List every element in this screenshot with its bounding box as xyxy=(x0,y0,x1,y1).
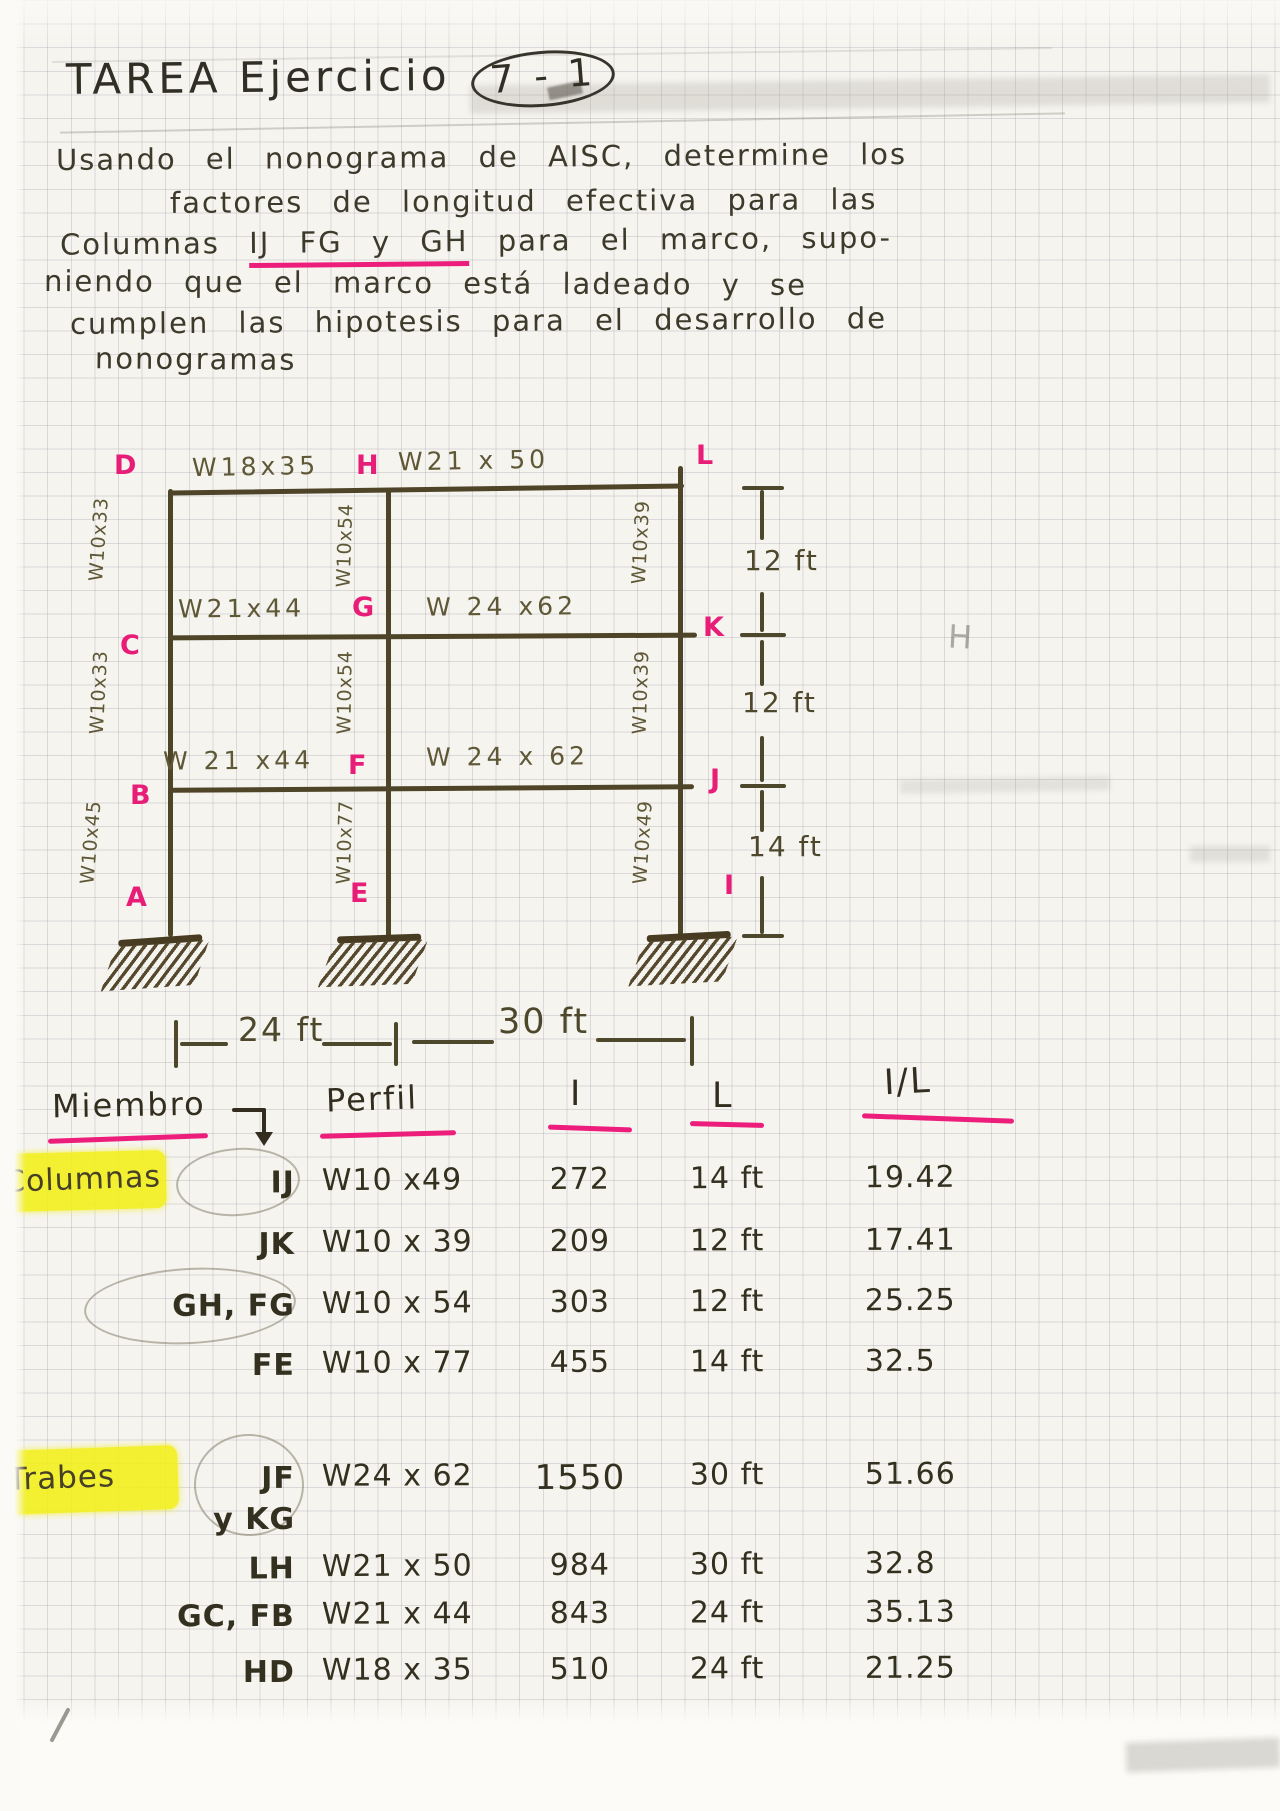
dim-line-segment xyxy=(760,876,764,934)
problem-line-2: factores de longitud efectiva para las xyxy=(170,182,878,220)
dim-story2: 12 ft xyxy=(742,686,817,719)
dim-line-segment xyxy=(760,736,764,782)
miembro-arrow-icon xyxy=(255,1132,273,1146)
table-header-perfil: Perfil xyxy=(325,1078,418,1119)
node-label-B: B xyxy=(130,780,151,811)
table-header-IL: I/L xyxy=(883,1061,933,1103)
fixed-support-I xyxy=(643,931,740,992)
dim-tick-J xyxy=(740,784,786,788)
fixed-support-E xyxy=(333,933,429,992)
dim-tick-left xyxy=(174,1020,178,1068)
header-underline xyxy=(548,1125,632,1133)
dim-tick-I xyxy=(742,934,784,938)
beam-label-HL: W21 x 50 xyxy=(398,445,550,477)
dim-line-segment xyxy=(760,790,764,832)
cell-perfil: W10 x 77 xyxy=(322,1345,502,1381)
cell-inertia: 209 xyxy=(520,1224,640,1259)
column-DA xyxy=(168,489,173,937)
cell-ratio: 21.25 xyxy=(865,1650,1030,1686)
table-row: JF y KG W24 x 62 1550 30 ft 51.66 xyxy=(0,1456,1080,1560)
node-label-A: A xyxy=(126,882,147,913)
cell-perfil: W10 x 39 xyxy=(322,1224,502,1260)
cell-inertia: 510 xyxy=(520,1652,640,1687)
scan-smudge-bottom-right xyxy=(1126,1737,1280,1772)
cell-member: FE xyxy=(60,1346,295,1387)
beam-label-BF: W 21 x44 xyxy=(163,745,314,775)
cell-ratio: 35.13 xyxy=(865,1594,1030,1630)
cell-member: JK xyxy=(60,1225,295,1266)
dim-story1: 12 ft xyxy=(744,544,819,577)
table-row: HD W18 x 35 510 24 ft 21.25 xyxy=(0,1650,1080,1754)
column-label-CB: W10x33 xyxy=(86,649,112,734)
cell-length: 12 ft xyxy=(690,1284,825,1320)
cell-length: 14 ft xyxy=(690,1344,825,1379)
support-hatch xyxy=(101,940,209,992)
cell-inertia: 455 xyxy=(520,1345,640,1380)
problem-line-1: Usando el nonograma de AISC, determine l… xyxy=(56,137,907,177)
column-label-FE: W10x77 xyxy=(333,800,358,885)
dim-bay2: 30 ft xyxy=(498,1002,589,1042)
problem-line-4: niendo que el marco está ladeado y se xyxy=(44,264,807,302)
cell-member: LH xyxy=(60,1549,295,1591)
header-underline xyxy=(48,1133,208,1144)
dim-tick-K xyxy=(740,633,786,637)
node-label-G: G xyxy=(352,592,374,623)
cell-length: 24 ft xyxy=(690,1595,825,1630)
homework-page: TAREA Ejercicio7 - 1 Usando el nonograma… xyxy=(0,0,1280,1811)
beam-DHL xyxy=(169,483,684,495)
cell-inertia: 984 xyxy=(520,1547,640,1583)
beam-label-CG: W21x44 xyxy=(178,593,305,623)
problem-line-3-pre: Columnas xyxy=(60,226,220,261)
cell-ratio: 25.25 xyxy=(865,1282,1030,1318)
exercise-number-badge: 7 - 1 xyxy=(469,45,617,112)
cell-length: 30 ft xyxy=(690,1457,825,1492)
support-hatch xyxy=(628,937,737,987)
cell-member: HD xyxy=(60,1653,295,1694)
cell-perfil: W24 x 62 xyxy=(322,1458,502,1494)
node-label-K: K xyxy=(703,612,724,643)
eraser-smudge xyxy=(1190,846,1270,862)
node-label-C: C xyxy=(120,630,140,661)
cell-perfil: W10 x49 xyxy=(322,1162,502,1198)
cell-inertia: 303 xyxy=(520,1284,640,1320)
underlined-column-names: IJ FG y GH xyxy=(249,224,469,268)
beam-CGK xyxy=(169,633,697,641)
cell-member: JF y KG xyxy=(60,1459,295,1541)
node-label-H: H xyxy=(356,450,379,481)
problem-line-6: nonogramas xyxy=(95,341,297,376)
column-HE xyxy=(386,488,391,937)
problem-line-3: Columnas IJ FG y GH para el marco, supo- xyxy=(60,220,892,261)
cell-member: IJ xyxy=(60,1163,295,1205)
cell-ratio: 32.8 xyxy=(865,1545,1030,1581)
dim-line-segment xyxy=(322,1042,392,1046)
cell-inertia: 1550 xyxy=(520,1458,640,1498)
cell-perfil: W21 x 44 xyxy=(322,1596,502,1632)
cell-ratio: 32.5 xyxy=(865,1343,1030,1379)
column-label-DC: W10x33 xyxy=(85,496,113,582)
cell-ratio: 17.41 xyxy=(865,1222,1030,1258)
dim-line-segment xyxy=(760,490,764,540)
cell-perfil: W10 x 54 xyxy=(322,1285,502,1321)
dim-tick-mid xyxy=(394,1022,398,1066)
dim-line-segment xyxy=(596,1038,686,1042)
table-header-L: L xyxy=(712,1076,734,1116)
dim-line-segment xyxy=(760,640,764,686)
cell-ratio: 19.42 xyxy=(865,1159,1030,1195)
cell-length: 14 ft xyxy=(690,1161,825,1197)
column-label-BA: W10x45 xyxy=(76,799,105,885)
cell-perfil: W18 x 35 xyxy=(322,1652,502,1688)
beam-label-DH: W18x35 xyxy=(192,451,320,482)
cell-length: 12 ft xyxy=(690,1223,825,1258)
column-label-LK: W10x39 xyxy=(628,499,654,584)
column-label-KJ: W10x39 xyxy=(629,650,654,735)
cell-length: 30 ft xyxy=(690,1547,825,1583)
node-label-J: J xyxy=(710,764,720,795)
dim-line-segment xyxy=(412,1040,494,1044)
header-underline xyxy=(320,1130,456,1139)
column-label-JI: W10x49 xyxy=(629,799,657,885)
beam-BFJ xyxy=(170,784,694,793)
node-label-F: F xyxy=(348,750,366,781)
dim-story3: 14 ft xyxy=(748,830,823,863)
problem-line-5: cumplen las hipotesis para el desarrollo… xyxy=(70,301,887,341)
dim-tick-right xyxy=(690,1016,694,1066)
eraser-smudge xyxy=(900,776,1110,794)
cell-perfil: W21 x 50 xyxy=(322,1548,502,1584)
table-header-I: I xyxy=(570,1074,582,1114)
table-row: FE W10 x 77 455 14 ft 32.5 xyxy=(0,1343,1080,1447)
ruled-line-under-title xyxy=(60,112,1065,133)
support-hatch xyxy=(318,939,428,987)
cell-member: GH, FG xyxy=(60,1286,295,1328)
miembro-arrow-icon xyxy=(232,1108,266,1112)
cell-length: 24 ft xyxy=(690,1651,825,1686)
dim-line-segment xyxy=(760,592,764,632)
header-underline xyxy=(862,1113,1014,1123)
dim-bay1: 24 ft xyxy=(238,1010,324,1049)
column-label-HG: W10x54 xyxy=(333,503,358,588)
miembro-arrow-icon xyxy=(262,1108,266,1134)
node-label-D: D xyxy=(114,450,136,481)
cell-member: GC, FB xyxy=(60,1597,295,1638)
column-label-GF: W10x54 xyxy=(333,650,356,735)
page-top-margin xyxy=(0,0,1280,50)
beam-label-GK: W 24 x62 xyxy=(426,591,577,621)
problem-line-3-post: para el marco, supo- xyxy=(498,220,893,257)
node-label-I: I xyxy=(724,870,734,901)
cell-inertia: 272 xyxy=(520,1161,640,1197)
node-label-L: L xyxy=(696,440,713,471)
page-title: TAREA Ejercicio7 - 1 xyxy=(66,49,615,112)
dim-line-segment xyxy=(180,1042,228,1046)
beam-label-FJ: W 24 x 62 xyxy=(426,741,589,771)
header-underline xyxy=(690,1121,764,1128)
table-header-member: Miembro xyxy=(52,1085,206,1126)
title-text: TAREA Ejercicio xyxy=(66,51,451,104)
pencil-h-mark: H xyxy=(947,617,973,656)
column-LI xyxy=(678,466,683,937)
fixed-support-A xyxy=(114,934,212,996)
cell-inertia: 843 xyxy=(520,1596,640,1631)
cell-ratio: 51.66 xyxy=(865,1456,1030,1492)
